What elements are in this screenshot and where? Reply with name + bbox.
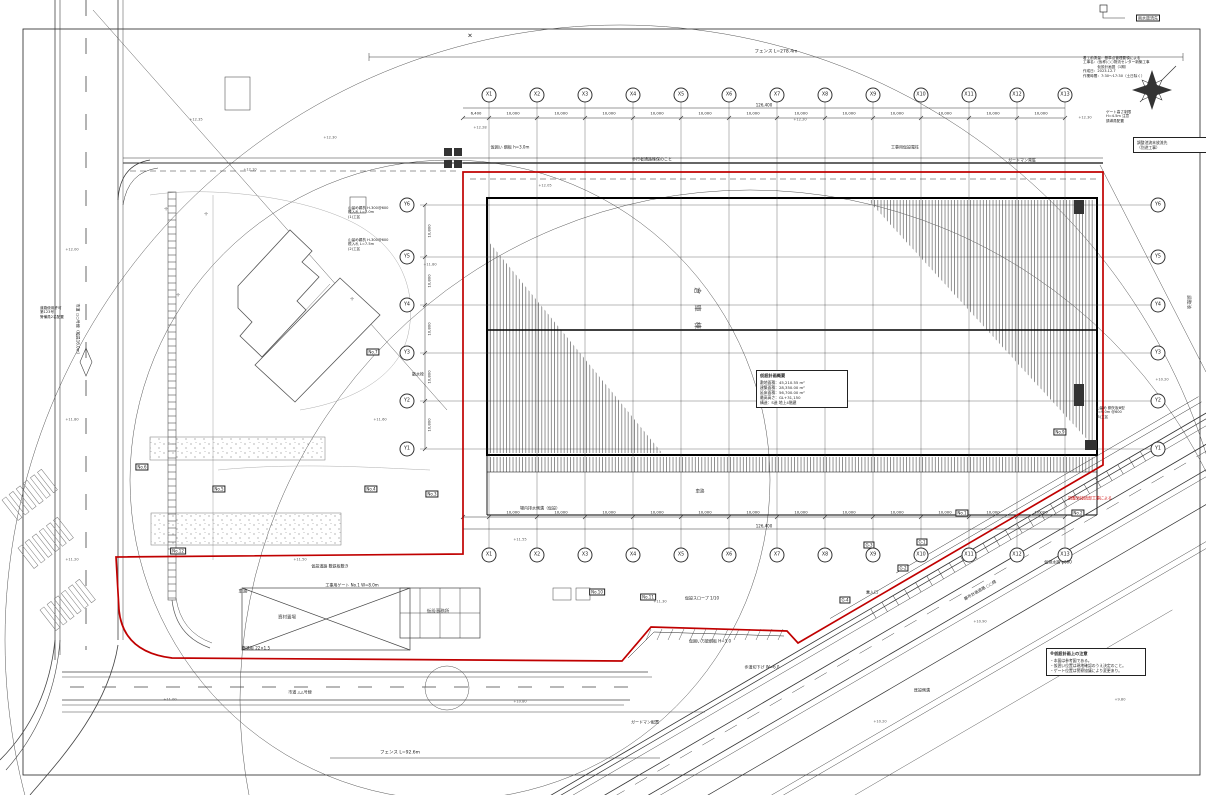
gen-line xyxy=(896,397,1198,573)
site-plan-sheet: フェンス L=278.4m フェンス L=92.6m 雨水放流先 ✕ 仮設計画概… xyxy=(0,0,1206,795)
south-road xyxy=(62,672,705,712)
gen-line xyxy=(719,528,1206,795)
ramp-bump xyxy=(622,627,798,661)
gen-line xyxy=(949,563,955,573)
gen-line xyxy=(983,543,989,553)
gen-line xyxy=(1050,504,1056,514)
gen-line xyxy=(1140,451,1146,461)
gen-line xyxy=(1129,458,1135,468)
temporary-yards xyxy=(242,588,590,650)
gen-line xyxy=(961,556,967,566)
gen-line xyxy=(1062,497,1068,507)
gen-line xyxy=(1095,478,1101,488)
west-road xyxy=(0,0,123,795)
hatch-left xyxy=(489,242,662,453)
gen-line xyxy=(1005,530,1011,540)
gen-line xyxy=(690,629,695,640)
gen-line xyxy=(904,589,910,599)
gen-line xyxy=(1118,465,1124,475)
gen-line xyxy=(657,629,662,640)
gen-line xyxy=(871,609,877,619)
north-compass-icon xyxy=(1132,66,1176,110)
gen-line xyxy=(1017,524,1023,534)
gen-line xyxy=(827,610,1173,795)
gen-line xyxy=(1028,517,1034,527)
west-fence xyxy=(168,192,213,648)
hatch-right xyxy=(868,200,1095,448)
gen-line xyxy=(712,629,717,640)
gen-line xyxy=(927,576,933,586)
gen-line xyxy=(938,569,944,579)
crosswalk-stripes xyxy=(40,579,95,630)
dimension-lines xyxy=(330,53,1183,758)
outfall-leader xyxy=(1100,5,1125,18)
gen-line xyxy=(634,480,1206,795)
hatch-strip xyxy=(489,457,1095,472)
cad-drawing xyxy=(0,0,1206,795)
gen-line xyxy=(1073,491,1079,501)
gen-line xyxy=(528,416,1206,795)
gen-line xyxy=(701,629,706,640)
gen-line xyxy=(731,533,1206,795)
gen-line xyxy=(830,402,1202,619)
gen-line xyxy=(994,537,1000,547)
crosswalk-stripes xyxy=(18,517,73,568)
planting-beds xyxy=(150,437,341,545)
gen-line xyxy=(882,602,888,612)
gen-line xyxy=(568,441,1206,795)
gen-line xyxy=(668,629,673,640)
gen-line xyxy=(916,583,922,593)
existing-buildings xyxy=(225,77,380,402)
gen-line xyxy=(1107,471,1113,481)
crosswalk-stripes xyxy=(2,469,57,520)
gen-line xyxy=(679,629,684,640)
building-footprint xyxy=(444,148,1097,515)
gen-line xyxy=(1084,484,1090,494)
gen-line xyxy=(972,550,978,560)
gen-line xyxy=(893,596,899,606)
